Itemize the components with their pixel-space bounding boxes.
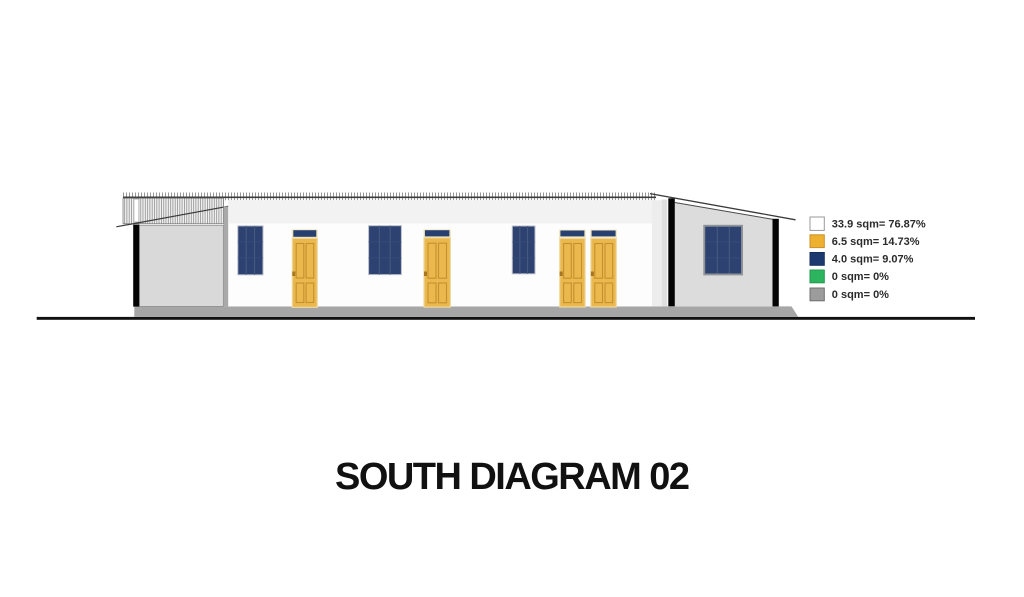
svg-text:33.9 sqm= 76.87%: 33.9 sqm= 76.87% — [832, 218, 926, 230]
svg-text:0 sqm= 0%: 0 sqm= 0% — [832, 289, 889, 301]
svg-text:SOUTH DIAGRAM 02: SOUTH DIAGRAM 02 — [335, 456, 690, 498]
svg-text:6.5 sqm= 14.73%: 6.5 sqm= 14.73% — [832, 236, 920, 248]
svg-text:4.0 sqm= 9.07%: 4.0 sqm= 9.07% — [832, 254, 914, 266]
svg-text:0 sqm= 0%: 0 sqm= 0% — [832, 271, 889, 283]
